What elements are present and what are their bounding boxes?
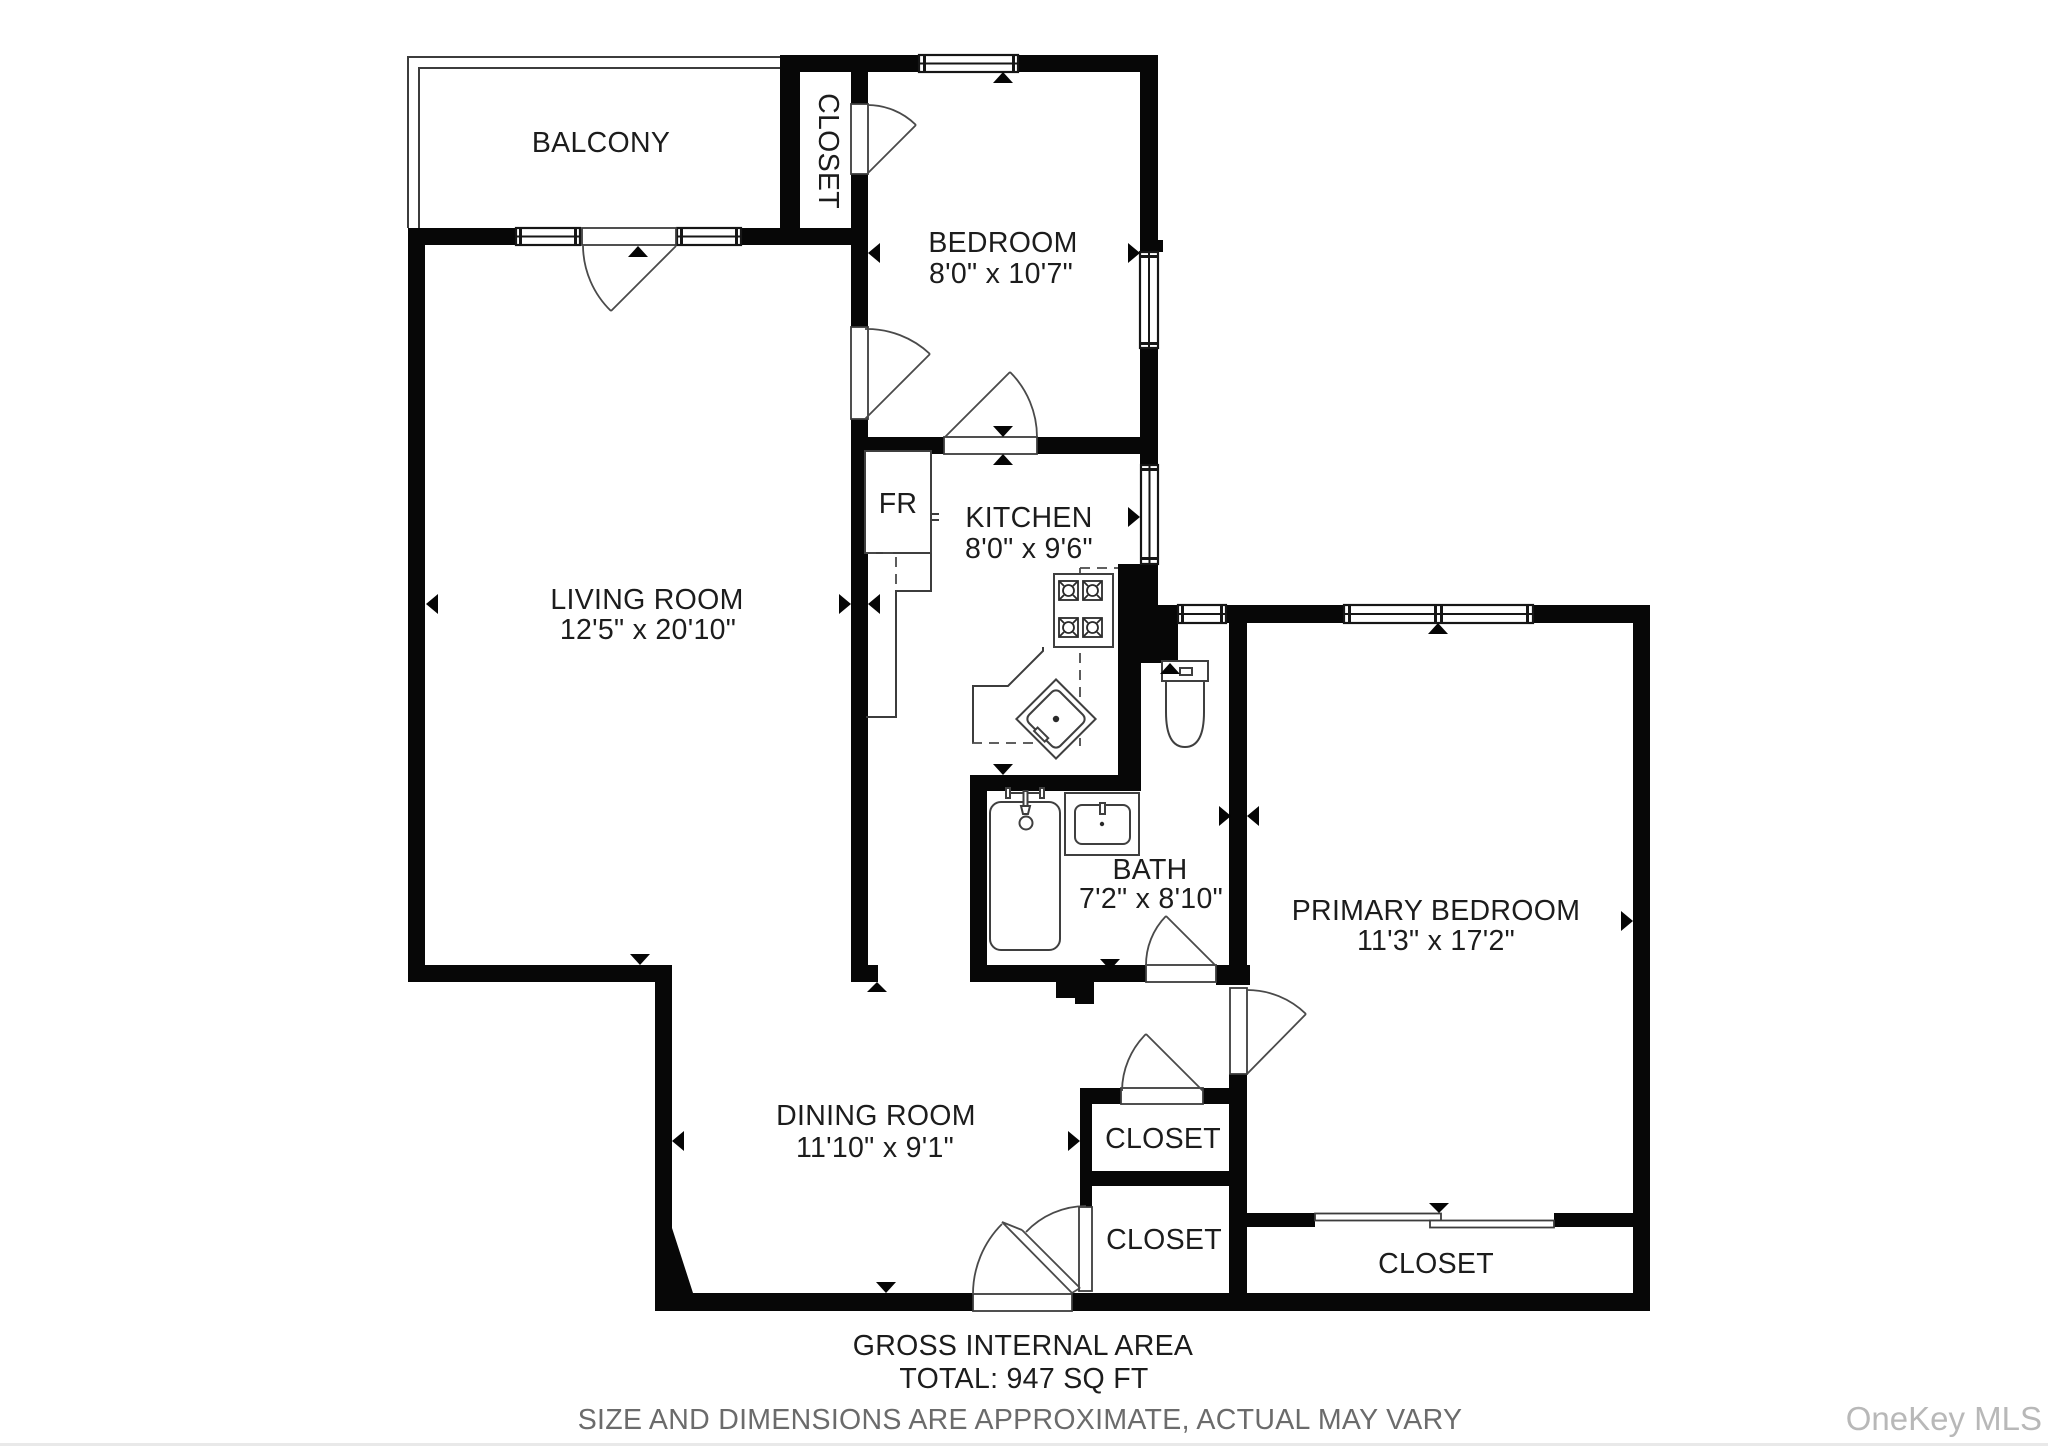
svg-text:12'5" x 20'10": 12'5" x 20'10" [560,614,736,646]
svg-text:TOTAL: 947 SQ FT: TOTAL: 947 SQ FT [899,1363,1148,1395]
svg-text:11'3" x 17'2": 11'3" x 17'2" [1357,925,1515,957]
svg-text:OneKey MLS: OneKey MLS [1846,1400,2042,1437]
svg-text:BALCONY: BALCONY [532,127,670,159]
svg-text:FR: FR [879,488,918,520]
svg-text:KITCHEN: KITCHEN [965,502,1092,534]
svg-text:8'0" x 10'7": 8'0" x 10'7" [929,258,1073,290]
svg-text:GROSS INTERNAL AREA: GROSS INTERNAL AREA [853,1330,1193,1362]
svg-text:DINING ROOM: DINING ROOM [776,1100,976,1132]
svg-text:CLOSET: CLOSET [812,93,844,209]
svg-text:CLOSET: CLOSET [1105,1123,1221,1155]
svg-text:LIVING ROOM: LIVING ROOM [550,584,743,616]
svg-text:BATH: BATH [1112,854,1187,886]
svg-text:SIZE AND DIMENSIONS ARE APPROX: SIZE AND DIMENSIONS ARE APPROXIMATE, ACT… [578,1404,1463,1436]
svg-text:PRIMARY BEDROOM: PRIMARY BEDROOM [1292,895,1581,927]
svg-text:7'2" x 8'10": 7'2" x 8'10" [1079,883,1223,915]
svg-text:CLOSET: CLOSET [1378,1248,1494,1280]
svg-text:BEDROOM: BEDROOM [928,227,1077,259]
svg-text:CLOSET: CLOSET [1106,1224,1222,1256]
svg-text:11'10" x 9'1": 11'10" x 9'1" [796,1132,954,1164]
svg-text:8'0" x 9'6": 8'0" x 9'6" [965,533,1093,565]
